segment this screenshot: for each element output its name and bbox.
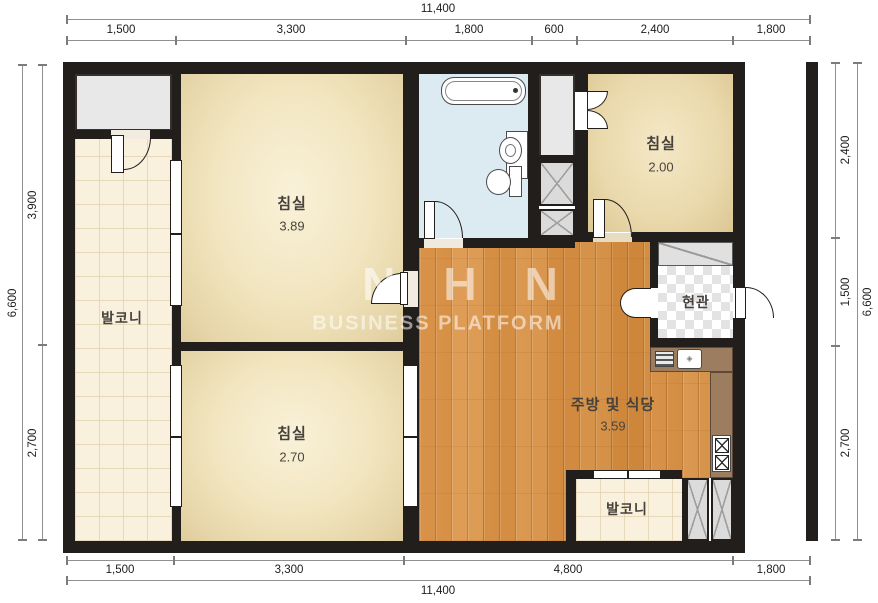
dimension-line: [67, 40, 810, 41]
wall: [575, 74, 588, 92]
dimension-segment: 3,300: [275, 564, 304, 576]
stove-icon: [712, 435, 731, 472]
dimension-segment: 3,300: [277, 24, 306, 36]
wall: [682, 478, 687, 541]
dimension-segment: 1,800: [757, 24, 786, 36]
dimension-tick: [38, 539, 47, 541]
door-opening: [424, 239, 463, 248]
wall: [733, 318, 745, 553]
dimension-tick: [809, 36, 811, 45]
room-area-bedroom-lower: 2.70: [279, 450, 304, 465]
stove-burner-icon: [715, 438, 729, 453]
wall: [539, 236, 575, 248]
wall: [650, 318, 658, 338]
dimension-tick: [853, 62, 862, 64]
watermark-text: BUSINESS PLATFORM: [312, 313, 563, 336]
window: [593, 470, 661, 479]
floor-plan-canvas: ◈: [0, 0, 878, 603]
dimension-tick: [732, 556, 734, 565]
door-leaf: [593, 199, 605, 238]
dimension-tick: [809, 556, 811, 565]
dimension-segment: 1,500: [106, 564, 135, 576]
dimension-segment: 4,800: [554, 564, 583, 576]
room-area-kitchen: 3.59: [600, 419, 625, 434]
room-label-bedroom-small: 침실: [646, 133, 676, 154]
dish-rack-icon: [655, 351, 674, 367]
dimension-segment: 1,800: [757, 564, 786, 576]
dimension-tick: [38, 344, 47, 346]
door-leaf: [424, 201, 435, 239]
dimension-line: [42, 65, 43, 540]
dimension-total-right: 6,600: [862, 288, 874, 317]
wall: [75, 130, 111, 139]
room-label-balcony-bottom: 발코니: [606, 499, 648, 519]
outer-side-wall: [806, 62, 818, 541]
washbasin-bowl: [505, 144, 516, 157]
shoe-cabinet-area: [658, 242, 733, 266]
toilet-bowl-icon: [486, 169, 511, 195]
dimension-tick: [66, 36, 68, 45]
dimension-line: [857, 63, 858, 540]
dimension-total-bottom: 11,400: [421, 585, 455, 597]
dimension-tick: [531, 36, 533, 45]
dimension-line: [835, 63, 836, 540]
door-swing-arc: [746, 287, 774, 318]
wall: [650, 338, 733, 347]
utility-closet-area: [75, 74, 172, 131]
dimension-tick: [38, 64, 47, 66]
wall: [150, 130, 172, 139]
dimension-tick: [732, 36, 734, 45]
watermark-logo: NHN: [314, 257, 606, 311]
wall: [566, 470, 576, 541]
balcony-left-floor: [75, 139, 172, 541]
washbasin-icon: [499, 137, 522, 164]
wall: [539, 155, 575, 161]
dimension-tick: [66, 576, 68, 585]
door-leaf: [111, 135, 124, 173]
inner-entrance-door-leaf: [620, 288, 651, 318]
dimension-tick: [175, 36, 177, 45]
stove-burner-icon: [715, 455, 729, 470]
wall: [575, 232, 593, 242]
wall: [63, 62, 75, 553]
dimension-tick: [831, 62, 840, 64]
dimension-segment: 2,700: [840, 429, 852, 458]
dimension-segment: 1,800: [455, 24, 484, 36]
door-opening: [650, 288, 658, 318]
dimension-tick: [403, 556, 405, 565]
dimension-segment: 600: [544, 24, 563, 36]
entrance-door-leaf: [735, 287, 746, 319]
dimension-line: [67, 560, 810, 561]
dimension-tick: [831, 345, 840, 347]
dimension-tick: [809, 15, 811, 24]
dimension-tick: [173, 556, 175, 565]
dimension-tick: [831, 237, 840, 239]
room-area-bedroom-large: 3.89: [279, 219, 304, 234]
dimension-segment: 2,400: [641, 24, 670, 36]
wall: [63, 62, 745, 74]
wall: [632, 232, 733, 242]
wall: [733, 62, 745, 288]
dimension-line: [67, 580, 810, 581]
bathtub-faucet-icon: [513, 88, 518, 93]
bathtub-icon: [441, 77, 526, 105]
room-label-kitchen: 주방 및 식당: [571, 394, 655, 415]
window: [403, 365, 418, 507]
duct-shaft-box: [711, 478, 733, 541]
window: [170, 365, 182, 507]
window: [170, 160, 182, 306]
dimension-segment: 2,700: [27, 429, 39, 458]
bedroom-lower-floor: [181, 351, 403, 541]
room-label-balcony-left: 발코니: [101, 308, 143, 328]
wall: [575, 130, 588, 238]
wall: [63, 541, 745, 553]
room-label-entrance: 현관: [682, 292, 710, 312]
dimension-tick: [831, 539, 840, 541]
dimension-tick: [18, 539, 27, 541]
wall: [463, 238, 528, 248]
dimension-tick: [66, 556, 68, 565]
duct-shaft-box: [539, 161, 575, 206]
dimension-total-top: 11,400: [421, 3, 455, 15]
dimension-segment: 1,500: [840, 278, 852, 307]
room-area-bedroom-small: 2.00: [648, 160, 673, 175]
wall: [181, 342, 403, 351]
dimension-segment: 1,500: [107, 24, 136, 36]
dimension-tick: [18, 64, 27, 66]
bathtub-inner: [445, 81, 522, 101]
duct-shaft-box: [539, 209, 575, 237]
dimension-tick: [576, 36, 578, 45]
room-label-bedroom-lower: 침실: [277, 423, 307, 444]
dimension-total-left: 6,600: [7, 289, 19, 318]
room-label-bedroom-large: 침실: [277, 193, 307, 214]
dimension-segment: 2,400: [840, 136, 852, 165]
dimension-tick: [809, 576, 811, 585]
wall: [528, 74, 539, 248]
dimension-line: [22, 65, 23, 540]
duct-shaft-box: [686, 478, 709, 541]
hall-closet-area: [539, 74, 575, 157]
wall: [650, 242, 658, 288]
dimension-tick: [853, 539, 862, 541]
dimension-segment: 3,900: [27, 191, 39, 220]
dimension-line: [67, 19, 810, 20]
dimension-tick: [66, 15, 68, 24]
kitchen-sink-icon: ◈: [677, 349, 702, 369]
dimension-tick: [405, 36, 407, 45]
